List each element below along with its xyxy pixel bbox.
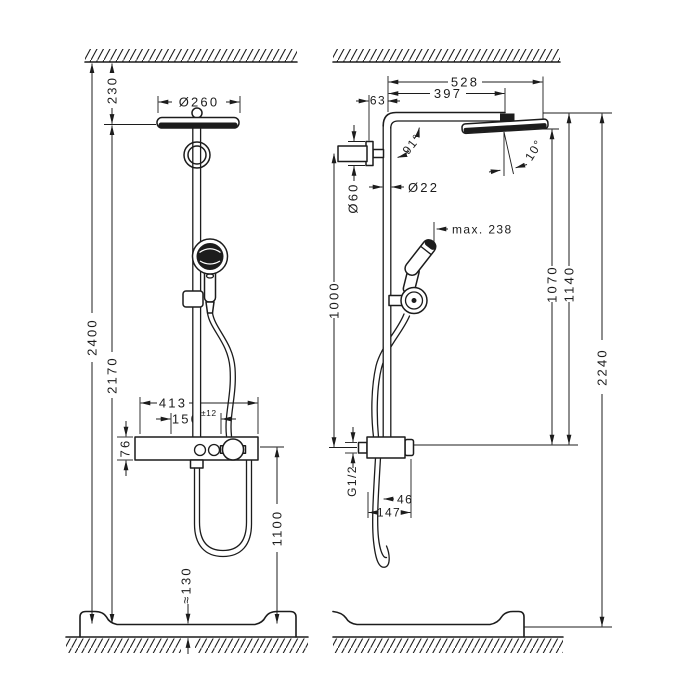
dim-2170-label: 2170 xyxy=(105,356,120,394)
dim-2170: 2170 xyxy=(104,125,156,624)
hose-loop-outer xyxy=(195,461,252,557)
dim-1070: 1070 xyxy=(545,130,560,445)
ceiling-right xyxy=(333,49,560,62)
dim-escutcheon: Ø60 xyxy=(346,125,361,214)
dim-arm-angle-label: 91° xyxy=(400,131,425,157)
dim-pipe-diameter-label: Ø22 xyxy=(408,180,439,195)
hose-outlet-fitting xyxy=(191,460,204,468)
handshower-hose-nut xyxy=(206,302,214,313)
overhead-shower-face xyxy=(159,123,238,128)
holder-ring-pin xyxy=(412,298,417,303)
dim-2400-label: 2400 xyxy=(85,318,100,356)
overhead-ball-joint xyxy=(192,108,202,118)
dim-max-reach-label: max. 238 xyxy=(452,223,513,237)
dim-230: 230 xyxy=(105,64,120,124)
dim-pipe-diameter: Ø22 xyxy=(369,180,439,195)
dim-head-tilt-label: 10° xyxy=(522,137,546,163)
dim-head-tilt: 10° xyxy=(489,132,546,176)
dim-1070-label: 1070 xyxy=(545,265,560,303)
dim-76: 76 xyxy=(117,421,133,476)
dim-1100: 1100 xyxy=(260,447,285,624)
dim-inlet-thread: G1/2 xyxy=(345,427,359,497)
valve-body xyxy=(367,437,405,458)
side-view xyxy=(333,113,548,638)
handshower-holder xyxy=(183,291,203,307)
dim-inlet-thread-label: G1/2 xyxy=(345,465,359,497)
dim-147-label: 147 xyxy=(377,506,401,520)
drawing-canvas: 2400 230 2170 Ø260 413 150 ±12 xyxy=(0,0,700,700)
handshower-head-side xyxy=(402,237,438,278)
valve-knob-side xyxy=(405,440,414,456)
riser-pipe-fill xyxy=(193,128,200,437)
dim-1100-label: 1100 xyxy=(270,510,285,547)
bracket-body xyxy=(338,146,367,162)
bathtub-side xyxy=(333,612,524,638)
dim-63-label: 63 xyxy=(370,94,386,108)
dim-150-tolerance: ±12 xyxy=(201,408,217,418)
dim-escutcheon-label: Ø60 xyxy=(346,182,361,213)
thermostat-knob xyxy=(223,439,244,460)
dim-147: 147 xyxy=(369,506,411,520)
dim-46: 46 xyxy=(384,493,414,507)
valve-inlet-nipple xyxy=(359,443,368,454)
dim-528: 528 xyxy=(389,75,543,90)
dim-2400: 2400 xyxy=(85,64,100,624)
dim-2240: 2240 xyxy=(595,114,610,627)
dim-2240-label: 2240 xyxy=(595,348,610,386)
dim-1140-label: 1140 xyxy=(562,266,577,303)
ceiling-left xyxy=(85,49,297,62)
dim-head-diameter-label: Ø260 xyxy=(179,95,220,110)
dim-63: 63 xyxy=(356,94,400,108)
floor-right xyxy=(333,637,563,653)
hose-upper-side-2 xyxy=(377,316,409,437)
dim-1000: 1000 xyxy=(327,154,342,447)
dim-230-label: 230 xyxy=(105,76,120,104)
side-pipe-fill xyxy=(384,122,391,437)
shower-technical-drawing: 2400 230 2170 Ø260 413 150 ±12 xyxy=(0,0,700,700)
floor-left xyxy=(66,637,308,654)
dim-1000-label: 1000 xyxy=(327,281,342,319)
dim-tub-height-label: ≈130 xyxy=(179,566,194,604)
dim-413-label: 413 xyxy=(159,396,187,411)
dim-arm-angle: 91° xyxy=(398,128,425,158)
bracket-pin xyxy=(373,150,384,158)
dim-1140: 1140 xyxy=(562,114,577,445)
pivot-collar-inner xyxy=(188,146,206,164)
handshower-head-face xyxy=(197,243,224,270)
dim-397: 397 xyxy=(389,86,505,101)
dim-76-label: 76 xyxy=(118,439,133,458)
hose-loop-inner xyxy=(200,461,247,551)
dim-397-label: 397 xyxy=(434,86,462,101)
dim-max-reach: max. 238 xyxy=(437,223,513,237)
dim-46-label: 46 xyxy=(397,493,413,507)
